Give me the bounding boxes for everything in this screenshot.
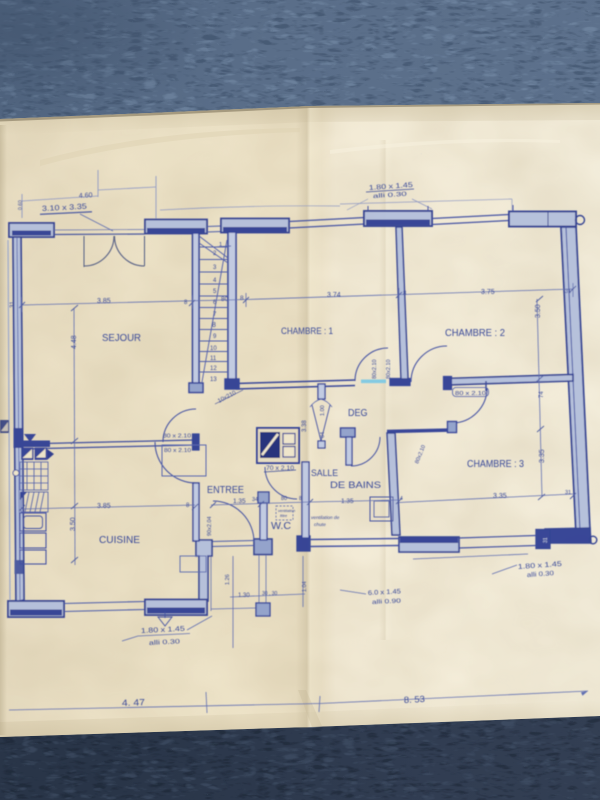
- svg-text:31: 31: [565, 289, 571, 295]
- svg-text:84: 84: [320, 432, 326, 438]
- svg-text:74: 74: [539, 391, 545, 398]
- svg-text:3.35: 3.35: [539, 449, 546, 463]
- svg-text:80 x 2.10: 80 x 2.10: [164, 448, 191, 454]
- svg-text:3.50: 3.50: [535, 304, 542, 318]
- svg-text:34: 34: [252, 497, 258, 503]
- svg-text:8: 8: [299, 496, 302, 502]
- svg-text:13: 13: [210, 377, 217, 383]
- svg-text:ENTREE: ENTREE: [207, 485, 244, 496]
- svg-text:80 x 2.10: 80 x 2.10: [163, 434, 191, 440]
- svg-text:12: 12: [210, 366, 217, 372]
- svg-text:4. 47: 4. 47: [122, 697, 145, 708]
- svg-text:1.35: 1.35: [233, 498, 246, 505]
- svg-text:DE BAINS: DE BAINS: [330, 480, 381, 491]
- svg-text:CUISINE: CUISINE: [99, 535, 140, 546]
- svg-text:8: 8: [240, 295, 244, 302]
- svg-text:chute: chute: [314, 522, 326, 528]
- svg-text:1: 1: [219, 242, 222, 248]
- svg-text:ventilation: ventilation: [278, 509, 295, 513]
- svg-text:CHAMBRE : 1: CHAMBRE : 1: [281, 326, 333, 337]
- svg-text:8. 53: 8. 53: [404, 694, 425, 705]
- svg-text:31: 31: [565, 490, 571, 496]
- svg-text:80: 80: [281, 496, 287, 502]
- svg-text:3.38: 3.38: [302, 420, 308, 432]
- svg-text:80 x 2.10: 80 x 2.10: [455, 391, 486, 397]
- svg-text:0.60: 0.60: [18, 200, 24, 210]
- svg-text:.: .: [419, 153, 425, 154]
- svg-text:3.50: 3.50: [70, 517, 77, 531]
- svg-text:SEJOUR: SEJOUR: [102, 333, 141, 344]
- svg-text:CHAMBRE : 3: CHAMBRE : 3: [467, 459, 524, 470]
- svg-text:filtre: filtre: [280, 514, 287, 518]
- svg-text:4: 4: [400, 496, 403, 502]
- svg-text:1.04: 1.04: [302, 581, 308, 592]
- svg-text:80x2.10: 80x2.10: [372, 359, 378, 379]
- svg-text:SALLE: SALLE: [311, 468, 338, 479]
- svg-text:CHAMBRE : 2: CHAMBRE : 2: [445, 328, 505, 339]
- svg-text:4.60: 4.60: [79, 192, 93, 200]
- svg-text:11: 11: [210, 356, 217, 362]
- svg-text:3.75: 3.75: [481, 289, 495, 296]
- svg-text:1.00: 1.00: [320, 405, 326, 416]
- svg-text:DEG: DEG: [348, 408, 368, 419]
- svg-text:1.35: 1.35: [341, 498, 354, 505]
- svg-text:31: 31: [10, 301, 16, 308]
- svg-text:8: 8: [212, 322, 216, 329]
- svg-text:3.85: 3.85: [97, 503, 111, 510]
- svg-text:1.26: 1.26: [225, 574, 231, 585]
- svg-text:30 , 30: 30 , 30: [262, 591, 278, 597]
- svg-text:4.48: 4.48: [71, 335, 78, 349]
- svg-text:31: 31: [543, 537, 549, 543]
- svg-text:3.74: 3.74: [327, 292, 341, 299]
- svg-text:90x2.04: 90x2.04: [207, 516, 213, 536]
- svg-text:80: 80: [221, 296, 229, 303]
- svg-text:ventilation de: ventilation de: [311, 515, 340, 521]
- svg-text:80x2.10: 80x2.10: [386, 359, 392, 379]
- svg-text:3.35: 3.35: [493, 493, 507, 500]
- svg-text:10: 10: [210, 346, 217, 352]
- svg-text:1.30: 1.30: [238, 593, 250, 599]
- svg-text:W.C: W.C: [271, 521, 291, 532]
- svg-text:3.85: 3.85: [97, 298, 111, 305]
